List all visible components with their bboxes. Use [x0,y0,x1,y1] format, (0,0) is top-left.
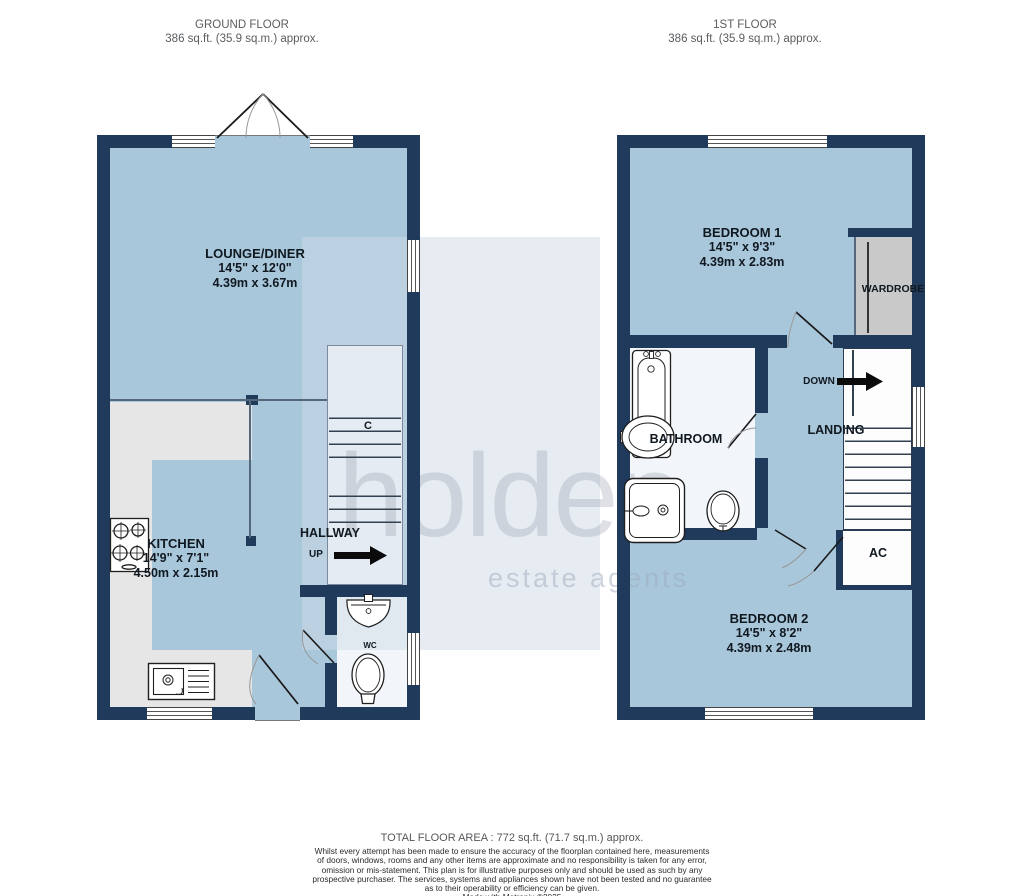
gf-wall-left [97,135,110,720]
ff-wall-left [617,135,630,720]
gf-kitchen-hall-divider [249,401,251,538]
bathroom-wall-bottom [617,528,757,540]
patio-door-opening [215,135,310,149]
bedroom1-imperial: 14'5" x 9'3" [700,240,785,255]
wardrobe-wall-top [848,228,912,237]
watermark-tagline: estate agents [488,563,689,594]
gf-lounge-kitchen-divider [110,399,327,401]
kitchen-counter-left [110,402,152,663]
bathroom-wall-right-lower [755,458,768,528]
lounge-window-left [172,135,215,148]
french-door-arcs [246,94,280,138]
disclaimer: Whilst every attempt has been made to en… [312,847,711,896]
bathroom-wall-right-upper [755,348,768,413]
kitchen-counter-bottom [110,650,252,707]
ac-cupboard [836,530,912,590]
gf-divider-nub-2 [246,536,256,546]
landing-window [912,387,925,447]
wc-window [407,633,420,685]
ground-floor-title: GROUND FLOOR 386 sq.ft. (35.9 sq.m.) app… [165,19,318,46]
wardrobe-divider [854,237,856,335]
kitchen-label: KITCHEN 14'9" x 7'1" 4.50m x 2.15m [134,536,219,581]
floorplan-canvas: holden estate agents [0,0,1024,896]
hallway-label: HALLWAY [300,526,360,540]
bedroom1-wall-left [617,335,787,348]
ground-floor-title-text: GROUND FLOOR [165,19,318,33]
kitchen-window [147,707,212,720]
wardrobe-label: WARDROBE [862,283,924,295]
front-door-opening [255,707,300,721]
first-floor-area-text: 386 sq.ft. (35.9 sq.m.) approx. [668,33,821,47]
kitchen-metric: 4.50m x 2.15m [134,566,219,581]
bedroom1-metric: 4.39m x 2.83m [700,255,785,270]
down-label: DOWN [803,376,835,387]
wc-wall-top [300,585,407,597]
french-doors [217,94,308,138]
bedroom1-name: BEDROOM 1 [700,225,785,240]
lounge-imperial: 14'5" x 12'0" [205,261,305,276]
wc-wall-left-lower [325,663,337,707]
lounge-label: LOUNGE/DINER 14'5" x 12'0" 4.39m x 3.67m [205,246,305,291]
kitchen-name: KITCHEN [134,536,219,551]
lounge-window-side [407,240,420,292]
kitchen-imperial: 14'9" x 7'1" [134,551,219,566]
lounge-metric: 4.39m x 3.67m [205,276,305,291]
bathroom-label: BATHROOM [650,432,723,446]
wc-label: WC [363,641,376,650]
gf-stairs-steps-lower [329,484,401,524]
bedroom2-label: BEDROOM 2 14'5" x 8'2" 4.39m x 2.48m [727,611,812,656]
ac-label: AC [869,546,887,560]
bedroom2-window [705,707,813,720]
stairs-cupboard-label: C [364,420,372,432]
lounge-name: LOUNGE/DINER [205,246,305,261]
gf-stairs-steps-upper [329,406,401,462]
ff-banister [852,350,854,416]
first-floor-title: 1ST FLOOR 386 sq.ft. (35.9 sq.m.) approx… [668,19,821,46]
wc-wall-left-upper [325,597,337,635]
landing-label: LANDING [808,423,865,437]
bedroom1-window [708,135,827,148]
bedroom1-label: BEDROOM 1 14'5" x 9'3" 4.39m x 2.83m [700,225,785,270]
up-label: UP [309,549,323,560]
total-floor-area: TOTAL FLOOR AREA : 772 sq.ft. (71.7 sq.m… [381,832,644,844]
bedroom2-imperial: 14'5" x 8'2" [727,626,812,641]
ground-floor-area-text: 386 sq.ft. (35.9 sq.m.) approx. [165,33,318,47]
bedroom2-metric: 4.39m x 2.48m [727,641,812,656]
lounge-window-right [310,135,353,148]
bedroom2-name: BEDROOM 2 [727,611,812,626]
bedroom1-wall-right [833,335,925,348]
first-floor-title-text: 1ST FLOOR [668,19,821,33]
